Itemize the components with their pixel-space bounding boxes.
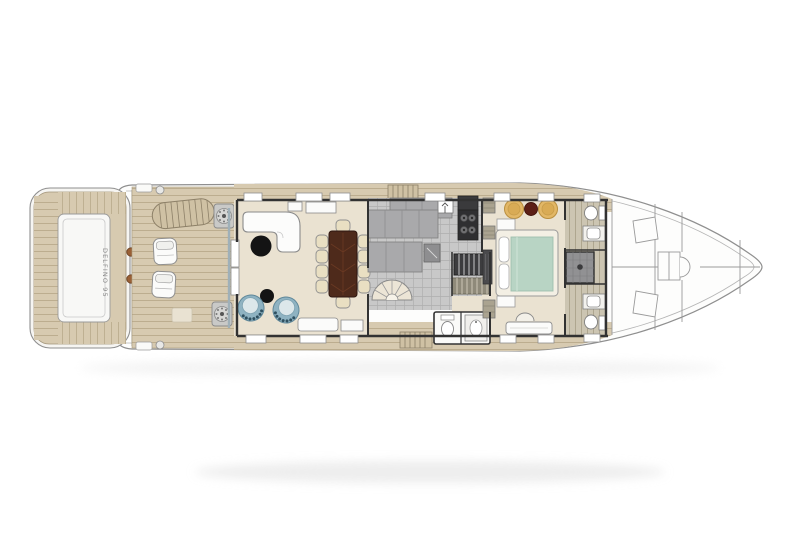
- stern-steps-bottom: [58, 322, 126, 344]
- cabinet: [341, 320, 363, 331]
- shower: [566, 252, 594, 283]
- deck-chair: [152, 271, 176, 298]
- stern-cleat: [136, 342, 152, 350]
- stern-steps-port: [34, 196, 60, 340]
- sliding-door: [231, 240, 239, 267]
- yacht-name-label: DELFINO 95: [101, 248, 109, 298]
- shower-drain: [577, 264, 583, 270]
- dining-chair: [316, 235, 328, 248]
- window-sill: [244, 193, 262, 201]
- winch: [156, 341, 164, 349]
- hull-shadow: [80, 360, 720, 483]
- window-sill: [296, 193, 322, 201]
- cabinet: [288, 202, 302, 211]
- window-sill: [340, 335, 358, 343]
- toilet: [585, 206, 598, 220]
- master-bed: [496, 230, 558, 296]
- pillow: [499, 264, 509, 289]
- coffee-table: [251, 236, 272, 257]
- toilet-tank: [599, 316, 605, 330]
- sideboard: [306, 202, 336, 213]
- winch: [156, 186, 164, 194]
- side-deck-steps-bottom: [400, 332, 432, 348]
- window-sill: [494, 193, 510, 201]
- deck-chair: [153, 238, 177, 265]
- galley-counter-left: [368, 210, 438, 238]
- sliding-door: [231, 268, 239, 295]
- window-sill: [425, 193, 445, 201]
- stern-cleat: [136, 184, 152, 192]
- galley-island: [368, 242, 422, 272]
- dining-chair: [336, 220, 350, 232]
- deck-hatch: [633, 217, 658, 243]
- sink: [587, 228, 600, 239]
- galley-sink: [438, 200, 453, 213]
- toilet-tank: [599, 206, 605, 220]
- faucet-icon: [475, 321, 477, 323]
- dining-chair: [316, 265, 328, 278]
- stove: [458, 210, 478, 240]
- window-sill: [300, 335, 326, 343]
- sink: [587, 296, 600, 307]
- window-sill: [584, 194, 600, 202]
- nightstand: [497, 219, 515, 230]
- deck-mat: [172, 308, 192, 322]
- nightstand: [497, 296, 515, 307]
- stern-steps-top: [58, 192, 126, 214]
- window-sill: [500, 335, 516, 343]
- day-head: [434, 312, 490, 344]
- window-sill: [538, 193, 554, 201]
- dining-chair: [358, 280, 370, 293]
- round-table: [525, 203, 538, 216]
- yacht-deck-plan-image: DELFINO 95: [0, 0, 800, 533]
- window-sill: [246, 335, 266, 343]
- pillow: [499, 237, 509, 262]
- window-sill: [330, 193, 350, 201]
- deck-plan-svg: DELFINO 95: [0, 0, 800, 533]
- toilet-tank: [441, 315, 454, 320]
- window-sill: [584, 334, 600, 342]
- toilet: [442, 322, 454, 337]
- toilet: [585, 315, 598, 329]
- bench: [298, 318, 338, 331]
- swim-platform: DELFINO 95: [30, 188, 135, 348]
- dining-chair: [316, 250, 328, 263]
- deck-vent-aft-top: [214, 204, 234, 228]
- galley-cabinet: [458, 196, 478, 210]
- deck-hatch: [633, 291, 658, 317]
- dining-chair: [316, 280, 328, 293]
- wardrobe: [483, 226, 495, 239]
- window-sill: [538, 335, 554, 343]
- dining-chair: [336, 296, 350, 308]
